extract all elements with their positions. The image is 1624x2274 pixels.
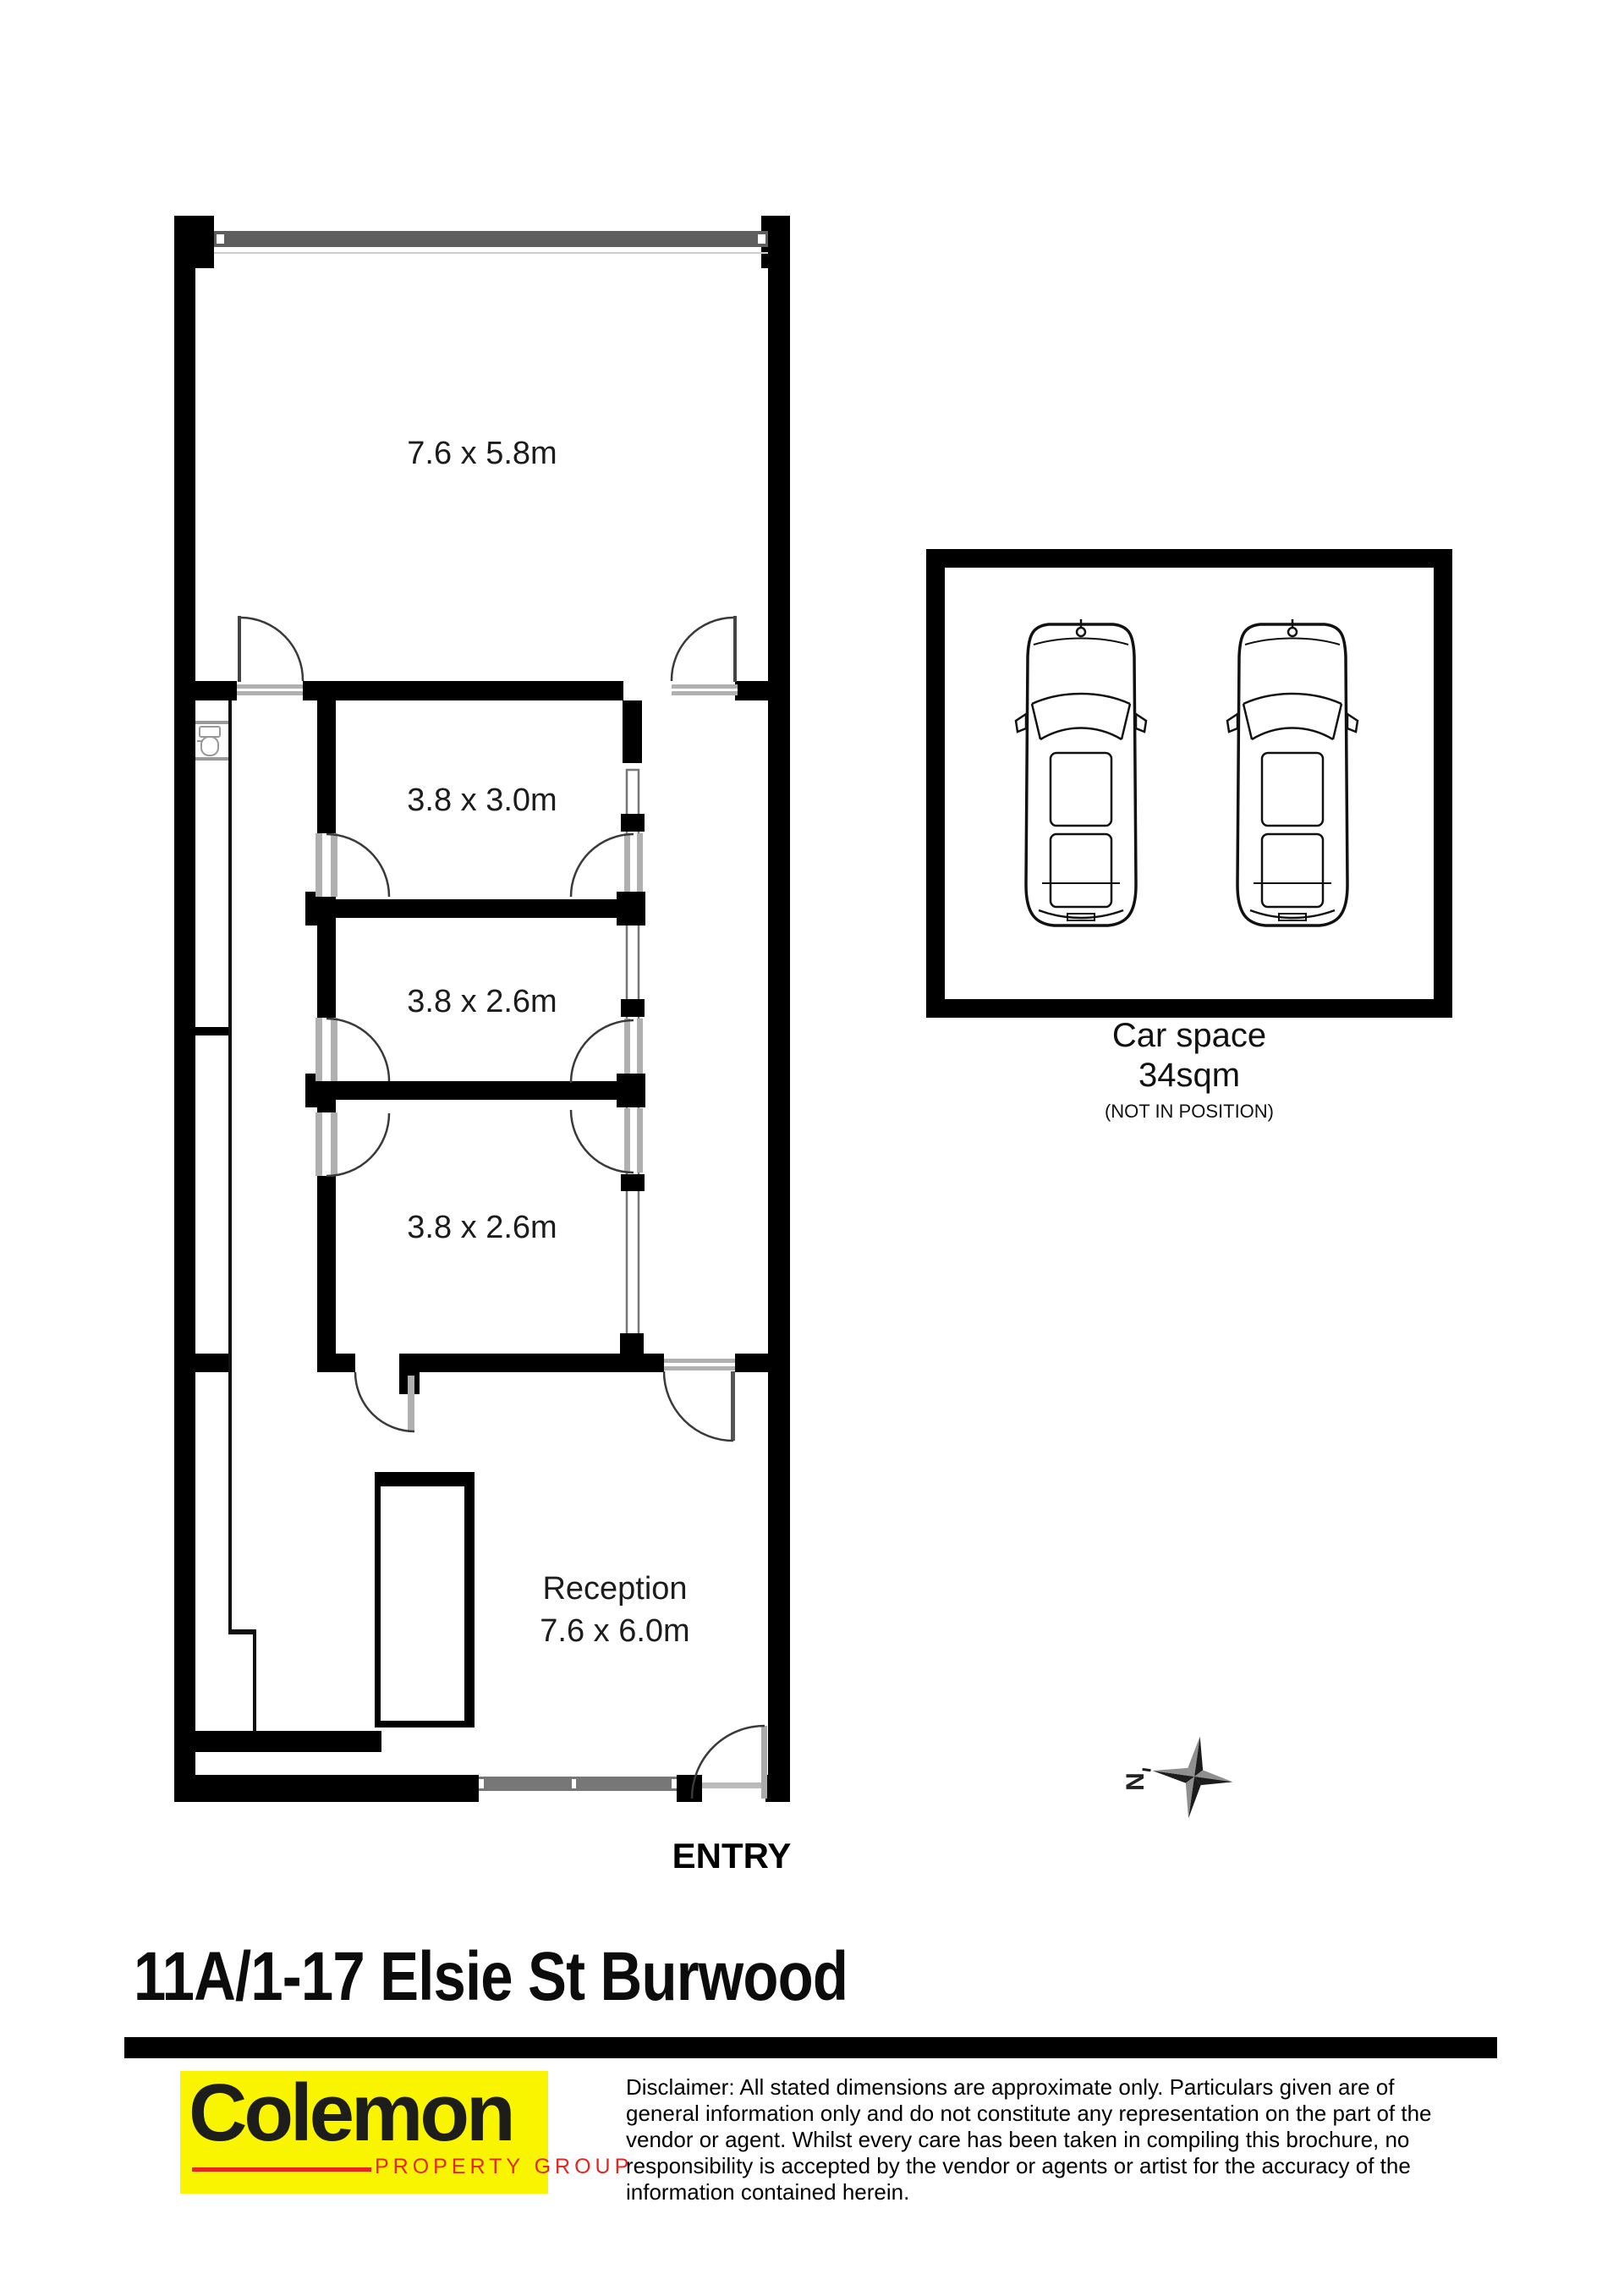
car-space-box — [935, 558, 1443, 1008]
car-space-area: 34sqm — [1138, 1057, 1240, 1094]
door-entry — [692, 1726, 767, 1799]
wall-a — [195, 681, 768, 700]
room-top-label: 7.6 x 5.8m — [407, 436, 557, 471]
hallway-walls — [195, 700, 256, 1733]
window-entry-front — [479, 1777, 677, 1791]
reception-name: Reception — [542, 1571, 687, 1607]
door-corridor-reception — [664, 1371, 735, 1441]
page-title: 11A/1-17 Elsie St Burwood — [134, 1937, 848, 2017]
wall-b — [336, 899, 623, 918]
door-top-room-left — [238, 616, 303, 682]
reception-dims: 7.6 x 6.0m — [540, 1613, 689, 1649]
room-2-label: 3.8 x 3.0m — [407, 783, 557, 818]
car-space-note: (NOT IN POSITION) — [1105, 1101, 1274, 1122]
compass-north-label: N — [1122, 1772, 1149, 1791]
divider-bar — [124, 2037, 1497, 2058]
logo-underline — [192, 2167, 371, 2172]
car-space-title: Car space — [1112, 1017, 1266, 1054]
room-3-label: 3.8 x 2.6m — [407, 984, 557, 1019]
logo-name: Colemon — [189, 2073, 513, 2154]
agency-logo: Colemon PROPERTY GROUP — [180, 2071, 548, 2194]
wall-c — [336, 1081, 623, 1100]
window-top — [214, 231, 768, 254]
glass-partition — [617, 700, 645, 1354]
door-top-room-right — [672, 616, 737, 682]
reception-shaft — [195, 1472, 475, 1752]
brochure-page: 7.6 x 5.8m 3.8 x 3.0m 3.8 x 2.6m 3.8 x 2… — [0, 0, 1624, 2274]
entry-label: ENTRY — [672, 1836, 792, 1876]
rooms-left-wall — [305, 681, 337, 1372]
wall-d — [317, 1354, 790, 1394]
disclaimer-text: Disclaimer: All stated dimensions are ap… — [626, 2074, 1459, 2205]
floorplan-drawing: 7.6 x 5.8m 3.8 x 3.0m 3.8 x 2.6m 3.8 x 2… — [0, 0, 1624, 2274]
toilet-icon — [197, 727, 220, 755]
logo-tagline: PROPERTY GROUP — [375, 2155, 633, 2179]
room-4-label: 3.8 x 2.6m — [407, 1210, 557, 1245]
compass-rose-icon — [1137, 1729, 1239, 1824]
